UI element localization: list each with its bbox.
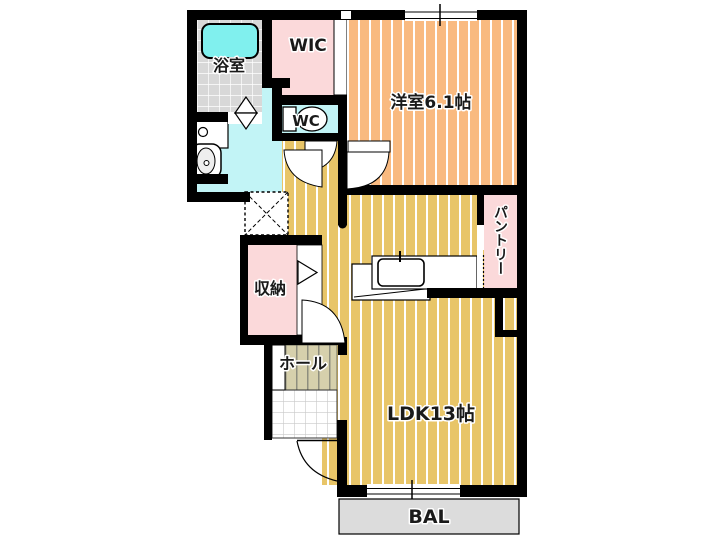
wall-end-cap: [338, 220, 347, 229]
wall-vanity: [195, 174, 228, 184]
wall-wc-bottom: [272, 133, 347, 141]
bathroom-label: 浴室: [213, 56, 245, 75]
wall-wc-left: [272, 78, 282, 141]
entrance-tiles: [272, 390, 337, 438]
wall-niche-v: [495, 298, 503, 332]
wic-label: WIC: [289, 36, 327, 56]
wall-hall-left: [264, 345, 272, 440]
storage-label: 収納: [254, 279, 286, 298]
western-door-leaf: [348, 141, 390, 152]
wall-storage-left: [240, 235, 248, 345]
wall-wc-top: [272, 95, 338, 105]
wall-western-left: [338, 95, 347, 225]
wc-label: WC: [292, 112, 320, 130]
wall-washroom-bottom: [187, 192, 250, 202]
floorplan-drawing: 浴室 WIC WC 洋室6.1帖 パントリー 収納 ホール LDK13帖 BAL: [0, 0, 710, 550]
wall-top-notch: [341, 11, 351, 19]
hall-label: ホール: [279, 354, 327, 373]
bathtub-icon: [202, 24, 258, 58]
vanity-faucet-icon: [204, 161, 209, 166]
wall-kitchen: [427, 288, 527, 298]
pantry-opening: [477, 225, 483, 290]
wall-niche-h: [495, 330, 517, 337]
wall-cavity-strip: [334, 18, 347, 95]
washer-drain-icon: [199, 128, 208, 137]
western-room-label: 洋室6.1帖: [390, 92, 471, 113]
washroom-floor-ext: [262, 88, 272, 112]
wall-western-bottom: [338, 185, 527, 195]
fridge-space-x-icon: [245, 192, 288, 235]
wall-left-upper: [187, 10, 197, 202]
kitchen-sink-icon: [378, 259, 424, 286]
wall-bath-bottom: [187, 112, 228, 122]
floorplan-canvas: 浴室 WIC WC 洋室6.1帖 パントリー 収納 ホール LDK13帖 BAL: [0, 0, 710, 550]
pantry-label: パントリー: [492, 205, 508, 275]
wall-storage-top: [240, 235, 322, 245]
wall-right: [517, 10, 527, 497]
wall-pantry-left: [477, 190, 484, 225]
wall-bath-wic: [262, 10, 272, 88]
ldk-label: LDK13帖: [387, 402, 475, 425]
balcony-label: BAL: [408, 506, 449, 528]
